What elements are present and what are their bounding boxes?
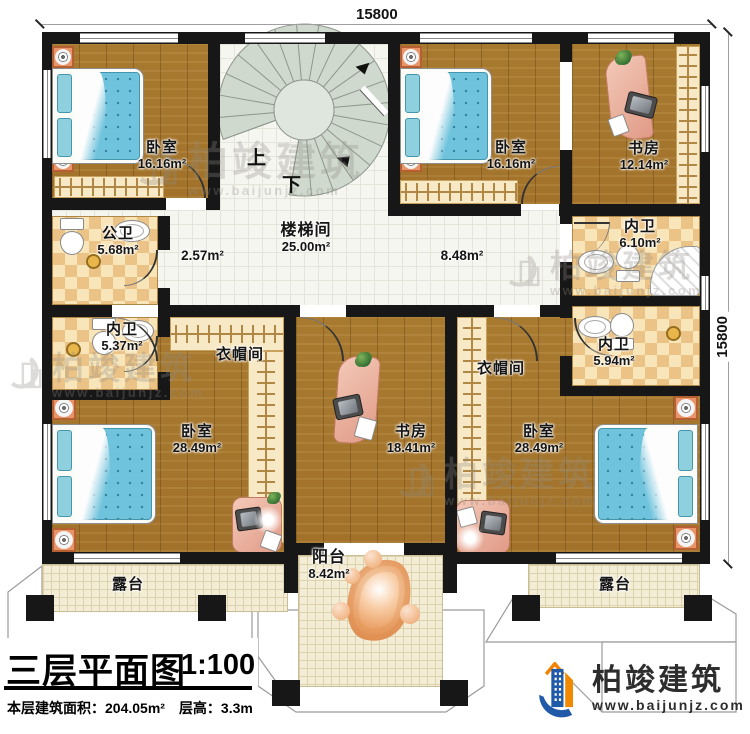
title-underline xyxy=(4,686,252,690)
brand-logo-icon xyxy=(534,656,586,720)
spiral-staircase xyxy=(214,20,398,216)
nightstand xyxy=(52,46,74,68)
wall-cloak-left xyxy=(284,317,296,555)
nightstand xyxy=(52,528,76,552)
window xyxy=(701,424,709,520)
wall-bedroom-tl-bottom xyxy=(52,198,166,210)
dimension-line-top xyxy=(40,24,712,25)
balcony-sphere xyxy=(364,550,382,568)
wardrobe-tl xyxy=(54,176,164,198)
balcony-post xyxy=(443,555,457,593)
balcony-sphere xyxy=(332,602,350,620)
room-label-bath-tr: 内卫6.10m² xyxy=(612,219,668,250)
desk-lamp-glow xyxy=(456,524,484,552)
plant xyxy=(268,492,280,504)
bed xyxy=(594,424,698,524)
title-block: 三层平面图 1:100 本层建筑面积：204.05m²层高：3.3m xyxy=(0,638,258,734)
wall-bath-tr-divider xyxy=(572,296,710,306)
brand-footer: 柏竣建筑 www.baijunjz.com xyxy=(534,656,745,720)
room-label-bath-public: 公卫5.68m² xyxy=(90,226,146,257)
plan-stats: 本层建筑面积：204.05m²层高：3.3m xyxy=(7,698,267,718)
balcony-sphere xyxy=(400,604,420,624)
wall-bath-public-right xyxy=(158,216,170,250)
wall-bedroom-tr-left xyxy=(388,44,400,216)
wall-bath-tr-left xyxy=(560,216,572,224)
wall-stair-left xyxy=(208,44,220,208)
plan-height-stat: 层高：3.3m xyxy=(179,700,253,716)
wardrobe-tr xyxy=(400,180,518,204)
brand-name: 柏竣建筑 xyxy=(592,664,745,697)
wall-study-bottom xyxy=(404,543,445,555)
nightstand xyxy=(400,46,422,68)
terrace-left-floor xyxy=(42,564,288,612)
toilet xyxy=(616,246,640,282)
window xyxy=(80,33,178,43)
window xyxy=(420,33,532,43)
plan-scale: 1:100 xyxy=(181,649,255,682)
balcony-post xyxy=(272,680,300,706)
ceiling-lamp xyxy=(666,326,681,341)
window xyxy=(74,553,180,563)
wall-bath-tr-left xyxy=(560,356,572,386)
terrace-post xyxy=(512,595,540,621)
plant xyxy=(616,50,631,65)
room-label-bath-right: 内卫5.94m² xyxy=(586,337,642,368)
room-label-bedroom-bl: 卧室28.49m² xyxy=(152,424,242,455)
room-label-study-center: 书房18.41m² xyxy=(366,424,456,455)
balcony-post xyxy=(284,555,298,593)
ceiling-lamp xyxy=(66,342,81,357)
room-label-hall-right: 8.48m² xyxy=(432,248,492,263)
window xyxy=(701,86,709,152)
room-label-hall-left: 2.57m² xyxy=(175,248,230,263)
room-label-balcony: 阳台8.42m² xyxy=(300,549,358,581)
wall-bath-right-bottom xyxy=(560,386,710,396)
wall-bath-left-right xyxy=(158,372,170,390)
room-label-bath-left: 内卫5.37m² xyxy=(94,322,150,353)
room-label-study-tr: 书房12.14m² xyxy=(600,141,688,172)
floorplan-canvas: 柏竣建筑www.baijunjz.com 柏竣建筑www.baijunjz.co… xyxy=(0,0,750,734)
dimension-right-value: 15800 xyxy=(714,312,731,362)
dimension-top-value: 15800 xyxy=(352,6,402,23)
dimension-line-right xyxy=(728,32,729,564)
wall-corridor-bottom xyxy=(158,305,300,317)
plant xyxy=(356,352,371,367)
wall-corridor-bottom xyxy=(346,305,494,317)
wall-tr-divider xyxy=(560,44,572,62)
wall-bedroom-tr-bottom xyxy=(400,204,521,216)
bed xyxy=(52,424,156,524)
window xyxy=(245,33,325,43)
room-label-bedroom-tr: 卧室16.16m² xyxy=(467,140,555,171)
wall-bath-left-bottom xyxy=(42,390,170,400)
room-label-terrace-right: 露台 xyxy=(587,577,643,594)
window xyxy=(556,553,682,563)
wall-bath-tr-top xyxy=(559,204,710,216)
nightstand xyxy=(674,396,698,420)
room-label-cloak-right: 衣帽间 xyxy=(473,361,529,378)
room-label-bedroom-br: 卧室28.49m² xyxy=(494,424,584,455)
wall-bath-public-right xyxy=(158,288,170,305)
terrace-post xyxy=(684,595,712,621)
window xyxy=(588,33,674,43)
window xyxy=(701,276,709,310)
wall-corridor-bottom xyxy=(540,305,572,317)
terrace-post xyxy=(198,595,226,621)
wall-bedroom-tl-bottom xyxy=(206,198,220,210)
window xyxy=(43,424,51,520)
plan-area-stat: 本层建筑面积：204.05m² xyxy=(7,700,165,716)
room-label-cloak-left: 衣帽间 xyxy=(212,347,268,364)
room-label-terrace-left: 露台 xyxy=(100,577,156,594)
wall-bath-left-right xyxy=(158,317,170,337)
wall-corridor-bottom xyxy=(42,305,112,317)
room-label-bedroom-tl: 卧室16.16m² xyxy=(118,140,206,171)
terrace-post xyxy=(26,595,54,621)
nightstand xyxy=(674,526,698,550)
window xyxy=(43,70,51,158)
balcony-post xyxy=(440,680,468,706)
brand-url: www.baijunjz.com xyxy=(592,697,745,713)
toilet xyxy=(60,218,84,252)
stair-down-label: 下 xyxy=(282,170,301,197)
stair-up-label: 上 xyxy=(247,143,266,170)
study-tr-shelf xyxy=(676,46,700,204)
room-label-stairwell: 楼梯间25.00m² xyxy=(258,222,354,254)
